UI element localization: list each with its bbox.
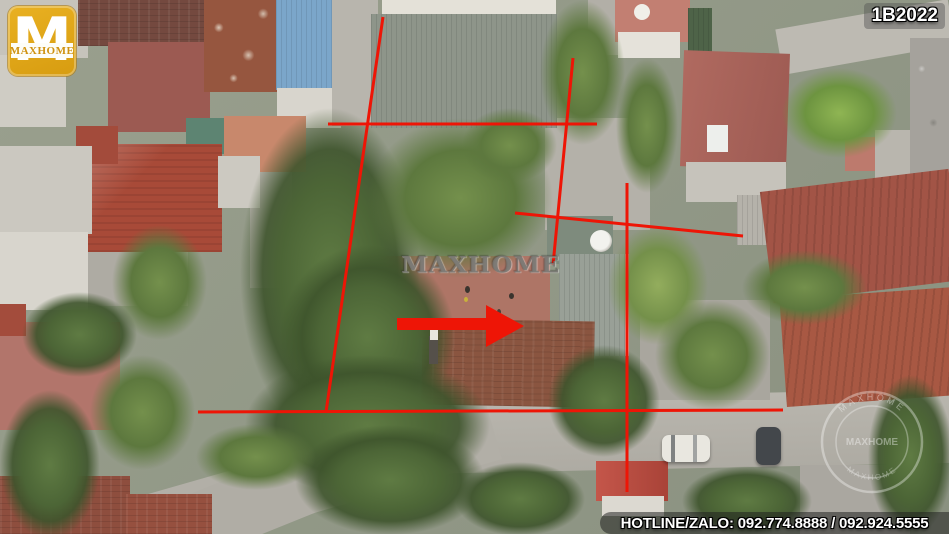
- building-white-2: [218, 156, 260, 208]
- warehouse-parapet: [382, 0, 556, 18]
- building-white-top-center: [618, 32, 680, 58]
- stamp-rim-top-text: MAXHOME: [836, 392, 907, 414]
- trees-road-edge-left: [196, 424, 316, 490]
- trees-left-mid: [112, 225, 207, 340]
- building-white-left-2: [0, 232, 88, 310]
- trees-plot-left: [240, 108, 420, 438]
- building-gray-silo: [588, 0, 618, 55]
- roof-red-bottom-left-1: [0, 476, 130, 534]
- roof-dark-tile: [78, 0, 206, 46]
- yard-gray-mid-right: [640, 300, 770, 400]
- trees-bottom-mid: [455, 462, 585, 534]
- direction-arrow: [397, 305, 524, 347]
- treeline-between-red-roofs: [742, 250, 867, 325]
- trees-plot-top: [462, 108, 557, 183]
- white-car: [662, 435, 710, 462]
- roof-salmon: [224, 116, 306, 172]
- roof-gray-below-right-house: [686, 162, 786, 202]
- person-dot-1: [465, 286, 470, 293]
- roof-maroon: [108, 42, 210, 132]
- building-white-1: [277, 88, 341, 128]
- roof-crimson-hip: [88, 144, 222, 252]
- stamp-rim-bottom-text: MAXHOME: [845, 465, 898, 482]
- gate-post-white: [430, 326, 438, 340]
- maxhome-center-watermark: MAXHOME: [401, 251, 549, 278]
- road-left: [138, 398, 502, 534]
- maxhome-stamp-watermark: MAXHOME MAXHOME MAXHOME: [820, 390, 924, 494]
- roof-corrugated-center: [559, 254, 629, 356]
- trees-plot-lower: [245, 355, 490, 495]
- roof-rusty-bottom-center: [421, 319, 594, 408]
- trees-bottom-left-2: [90, 355, 195, 470]
- roof-teal: [186, 118, 226, 154]
- shed-gray-right: [875, 130, 915, 194]
- maxhome-logo-text: MAXHOME: [10, 45, 75, 57]
- maxhome-logo: M MAXHOME: [8, 6, 76, 76]
- dark-car: [756, 427, 781, 465]
- building-white-left-1: [0, 146, 92, 234]
- yard-gray-left: [88, 248, 188, 306]
- roof-rust-mottled: [204, 0, 278, 92]
- maxhome-logo-monogram: M: [8, 3, 76, 77]
- trees-mid-right-yard: [655, 300, 770, 410]
- person-dot-yellow: [464, 297, 468, 302]
- path-bottom-left: [188, 450, 323, 534]
- trees-right-of-warehouse: [616, 58, 678, 193]
- grass-right-of-plot: [608, 225, 708, 345]
- rooftop-tank: [707, 125, 728, 152]
- trees-top-center: [540, 0, 625, 145]
- roof-red-bottom-left-2: [126, 494, 212, 534]
- hotline-text: HOTLINE/ZALO: 092.774.8888 / 092.924.555…: [621, 515, 929, 532]
- yard-gray-center: [545, 118, 650, 230]
- building-gray-top-center: [332, 0, 378, 126]
- svg-text:MAXHOME: MAXHOME: [845, 465, 898, 482]
- roof-red-big-2: [779, 287, 949, 407]
- trees-bottom-center: [295, 425, 485, 534]
- video-frame: MAXHOME MAXHOME MAXHOME MAXHOME M MAXHOM…: [0, 0, 949, 534]
- roof-red-small-2: [0, 304, 26, 336]
- satellite-dish: [590, 230, 612, 252]
- boundary-line-bottom-boundary: [198, 410, 783, 412]
- roof-pink-top-center: [615, 0, 690, 42]
- yard-pink-left: [0, 322, 120, 430]
- roof-corrugated-small-right: [737, 195, 777, 245]
- roof-red-big-1: [760, 169, 949, 303]
- roof-green-strip: [688, 8, 712, 74]
- trees-over-pink-yard: [22, 292, 137, 377]
- stamp-center-text: MAXHOME: [846, 437, 899, 448]
- roof-red-small-left: [76, 126, 118, 164]
- gate-pillar: [429, 336, 438, 364]
- roof-blue: [276, 0, 342, 90]
- building-red-roof-bottom: [596, 461, 668, 501]
- person-dot-3: [497, 309, 501, 315]
- banana-trees: [782, 68, 897, 158]
- trees-below-corrugated: [548, 345, 660, 457]
- hotline-bar: HOTLINE/ZALO: 092.774.8888 / 092.924.555…: [600, 512, 949, 534]
- warehouse-roof: [371, 14, 557, 128]
- trees-bottom-left: [0, 390, 100, 534]
- roof-red-house-right: [680, 50, 790, 170]
- plot-code-badge: 1B2022: [864, 3, 945, 29]
- boundary-line-middle-horizontal: [515, 213, 743, 236]
- rubble-right-edge: [910, 38, 949, 192]
- person-dot-2: [509, 293, 514, 299]
- shed-pink-right: [845, 137, 881, 171]
- maxhome-logo-band: MAXHOME: [11, 43, 73, 58]
- path-vertical-left: [250, 158, 292, 288]
- satellite-dish-top: [634, 4, 650, 20]
- boundary-line-left-boundary: [326, 17, 383, 412]
- boundary-line-inner-vertical: [553, 58, 573, 265]
- svg-text:MAXHOME: MAXHOME: [836, 392, 907, 414]
